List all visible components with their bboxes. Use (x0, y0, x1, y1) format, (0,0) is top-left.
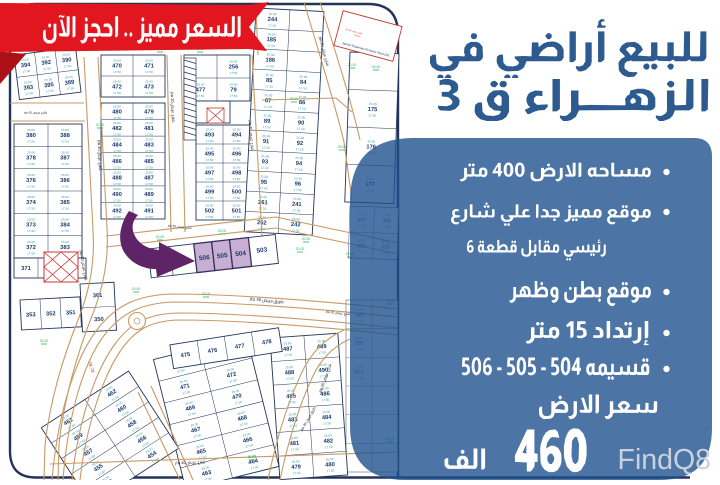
svg-text:20.00: 20.00 (156, 235, 165, 239)
svg-text:20.00: 20.00 (132, 287, 141, 291)
svg-text:85: 85 (266, 78, 274, 84)
svg-text:17.50: 17.50 (145, 70, 153, 74)
svg-text:17.50: 17.50 (265, 84, 273, 88)
svg-text:486: 486 (320, 391, 331, 398)
svg-text:25.00: 25.00 (206, 166, 214, 170)
svg-text:25.00: 25.00 (61, 151, 69, 155)
svg-text:17.50: 17.50 (27, 207, 35, 211)
svg-text:17.50: 17.50 (323, 421, 331, 426)
svg-text:480: 480 (112, 109, 122, 115)
svg-text:25.00: 25.00 (288, 412, 296, 417)
svg-text:17.50: 17.50 (297, 127, 305, 131)
svg-text:17.50: 17.50 (206, 158, 214, 162)
svg-text:25.00: 25.00 (61, 173, 69, 177)
svg-text:25.00: 25.00 (113, 204, 121, 208)
svg-text:25.00: 25.00 (61, 218, 69, 222)
svg-text:504: 504 (235, 250, 247, 258)
svg-text:25.00: 25.00 (145, 137, 153, 141)
svg-text:17.50: 17.50 (298, 106, 306, 110)
svg-text:25.00: 25.00 (293, 197, 301, 201)
svg-text:25.00: 25.00 (145, 104, 153, 108)
svg-text:244: 244 (267, 17, 278, 24)
svg-text:25.00: 25.00 (264, 93, 272, 97)
svg-text:25.00: 25.00 (206, 185, 214, 189)
svg-text:17.50: 17.50 (230, 94, 238, 98)
svg-text:25.00: 25.00 (61, 128, 69, 132)
svg-text:487: 487 (144, 176, 154, 182)
svg-text:482: 482 (112, 126, 122, 132)
svg-text:500: 500 (232, 190, 242, 196)
svg-text:175: 175 (368, 107, 379, 113)
svg-text:17.50: 17.50 (27, 229, 35, 233)
svg-text:25.00: 25.00 (295, 156, 303, 160)
svg-text:17.50: 17.50 (197, 94, 205, 98)
svg-text:17.50: 17.50 (27, 251, 35, 255)
svg-text:25.00: 25.00 (233, 128, 241, 132)
svg-text:17.50: 17.50 (368, 113, 376, 117)
svg-text:20.00: 20.00 (372, 65, 381, 69)
svg-text:17.50: 17.50 (325, 445, 333, 450)
svg-text:388: 388 (60, 133, 70, 139)
svg-text:374: 374 (26, 200, 36, 206)
svg-text:25.00: 25.00 (206, 128, 214, 132)
svg-text:242: 242 (291, 222, 301, 228)
svg-text:25.00: 25.00 (61, 240, 69, 244)
svg-text:25.00: 25.00 (145, 187, 153, 191)
svg-text:25.00: 25.00 (113, 121, 121, 125)
svg-text:17.50: 17.50 (61, 229, 69, 233)
svg-text:472: 472 (112, 85, 122, 91)
svg-text:17.50: 17.50 (145, 182, 153, 186)
svg-text:493: 493 (205, 133, 215, 139)
svg-text:89: 89 (264, 119, 272, 125)
svg-text:20.00: 20.00 (202, 292, 211, 296)
svg-text:94: 94 (296, 161, 304, 167)
svg-text:394: 394 (21, 62, 32, 69)
svg-text:351: 351 (66, 310, 77, 317)
svg-text:92: 92 (297, 141, 304, 147)
svg-text:17.50: 17.50 (61, 140, 69, 144)
svg-text:25.00: 25.00 (113, 154, 121, 158)
svg-text:95: 95 (260, 180, 268, 186)
svg-text:17.50: 17.50 (233, 196, 241, 200)
svg-text:25.00: 25.00 (113, 80, 121, 84)
svg-text:25.00: 25.00 (145, 59, 153, 63)
svg-text:17.50: 17.50 (261, 166, 269, 170)
svg-text:499: 499 (205, 190, 215, 196)
svg-text:371: 371 (21, 266, 31, 272)
svg-text:20.00: 20.00 (248, 455, 257, 459)
svg-text:502: 502 (205, 209, 215, 215)
svg-text:20.00: 20.00 (348, 63, 357, 67)
svg-text:492: 492 (112, 209, 122, 215)
svg-text:17.50: 17.50 (233, 158, 241, 162)
svg-text:25.00: 25.00 (230, 83, 238, 87)
svg-text:17.50: 17.50 (113, 116, 121, 120)
svg-text:25.00: 25.00 (145, 171, 153, 175)
svg-text:17.50: 17.50 (266, 64, 274, 68)
svg-text:79: 79 (230, 88, 237, 94)
svg-text:20.00: 20.00 (40, 339, 49, 343)
svg-text:503: 503 (256, 246, 268, 254)
svg-text:491: 491 (144, 209, 154, 215)
svg-text:17.50: 17.50 (113, 70, 121, 74)
svg-text:25.00: 25.00 (206, 147, 214, 151)
svg-text:17.50: 17.50 (145, 91, 153, 95)
svg-text:241: 241 (292, 202, 303, 209)
svg-text:17.50: 17.50 (206, 177, 214, 181)
svg-text:498: 498 (232, 171, 242, 177)
svg-text:17.50: 17.50 (113, 199, 121, 203)
svg-text:488: 488 (284, 370, 295, 377)
svg-text:484: 484 (322, 415, 333, 422)
svg-text:352: 352 (46, 311, 56, 317)
svg-text:25.00: 25.00 (27, 151, 35, 155)
svg-text:25.00: 25.00 (206, 204, 214, 208)
svg-text:87: 87 (265, 98, 272, 104)
svg-text:20.00: 20.00 (302, 237, 311, 241)
svg-text:17.50: 17.50 (27, 140, 35, 144)
svg-text:96: 96 (294, 181, 302, 187)
svg-text:17.50: 17.50 (294, 188, 302, 192)
svg-text:17.50: 17.50 (292, 471, 300, 476)
svg-text:378: 378 (26, 156, 36, 162)
svg-text:17.50: 17.50 (268, 23, 276, 27)
svg-text:25.00: 25.00 (296, 136, 304, 140)
svg-text:17.50: 17.50 (113, 132, 121, 136)
svg-text:25.00: 25.00 (113, 104, 121, 108)
svg-text:25.00: 25.00 (262, 134, 270, 138)
svg-text:25.00: 25.00 (233, 204, 241, 208)
svg-text:17.50: 17.50 (27, 184, 35, 188)
svg-text:20.00: 20.00 (296, 247, 305, 251)
svg-text:17.50: 17.50 (260, 186, 268, 190)
svg-text:90: 90 (298, 120, 305, 126)
svg-text:470: 470 (112, 64, 122, 70)
svg-text:25.00: 25.00 (27, 218, 35, 222)
svg-text:25.00: 25.00 (61, 195, 69, 199)
svg-text:25.00: 25.00 (367, 139, 375, 143)
svg-text:25.00: 25.00 (297, 115, 305, 119)
svg-text:17.50: 17.50 (286, 376, 294, 381)
svg-text:17.50: 17.50 (206, 139, 214, 143)
svg-text:384: 384 (60, 223, 70, 229)
svg-text:25.00: 25.00 (233, 166, 241, 170)
svg-text:505: 505 (217, 252, 229, 260)
svg-text:17.50: 17.50 (233, 215, 241, 219)
svg-text:25.00: 25.00 (285, 365, 293, 370)
svg-text:91: 91 (263, 139, 271, 145)
svg-text:17.50: 17.50 (61, 207, 69, 211)
svg-text:350: 350 (94, 317, 104, 323)
svg-text:17.50: 17.50 (206, 196, 214, 200)
svg-text:25.00: 25.00 (113, 171, 121, 175)
svg-text:17.50: 17.50 (318, 350, 326, 355)
svg-text:93: 93 (262, 159, 270, 165)
svg-text:383: 383 (60, 245, 70, 251)
svg-text:481: 481 (289, 441, 300, 448)
svg-text:17.50: 17.50 (259, 206, 267, 210)
svg-text:488: 488 (112, 176, 122, 182)
svg-text:17.50: 17.50 (326, 469, 334, 474)
svg-text:17.50: 17.50 (145, 199, 153, 203)
svg-text:17.50: 17.50 (113, 91, 121, 95)
svg-text:25.00: 25.00 (27, 173, 35, 177)
svg-text:25.00: 25.00 (326, 457, 334, 462)
svg-text:372: 372 (26, 245, 36, 251)
svg-text:483: 483 (144, 142, 154, 148)
svg-text:25.00: 25.00 (233, 185, 241, 189)
svg-text:486: 486 (112, 159, 122, 165)
svg-text:261: 261 (258, 200, 269, 207)
svg-text:25.00: 25.00 (263, 114, 271, 118)
svg-text:17.50: 17.50 (263, 125, 271, 129)
svg-text:17.50: 17.50 (206, 215, 214, 219)
svg-text:17.50: 17.50 (321, 398, 329, 403)
svg-text:506: 506 (199, 254, 211, 262)
svg-text:477: 477 (196, 88, 206, 94)
svg-text:25.00: 25.00 (145, 204, 153, 208)
svg-text:17.50: 17.50 (27, 162, 35, 166)
svg-text:17.50: 17.50 (267, 44, 275, 48)
svg-text:17.50: 17.50 (291, 447, 299, 452)
svg-text:25.00: 25.00 (268, 32, 276, 36)
svg-text:17.50: 17.50 (296, 147, 304, 151)
svg-text:497: 497 (205, 171, 215, 177)
svg-text:17.50: 17.50 (292, 208, 300, 212)
svg-text:86: 86 (299, 100, 307, 106)
svg-text:256: 256 (229, 65, 239, 71)
svg-text:25.00: 25.00 (269, 12, 277, 16)
svg-text:25.00: 25.00 (113, 59, 121, 63)
svg-text:17.50: 17.50 (113, 166, 121, 170)
svg-text:473: 473 (144, 85, 154, 91)
svg-text:380: 380 (26, 133, 36, 139)
svg-text:489: 489 (144, 192, 154, 198)
svg-text:25.00: 25.00 (260, 175, 268, 179)
svg-text:17.50: 17.50 (233, 177, 241, 181)
svg-text:471: 471 (144, 64, 154, 70)
svg-text:25.00: 25.00 (261, 154, 269, 158)
svg-text:17.50: 17.50 (262, 145, 270, 149)
svg-text:25.00: 25.00 (27, 240, 35, 244)
svg-text:25.00: 25.00 (233, 147, 241, 151)
svg-text:373: 373 (26, 223, 36, 229)
svg-text:501: 501 (232, 209, 242, 215)
svg-text:25.00: 25.00 (294, 176, 302, 180)
svg-text:17.50: 17.50 (320, 374, 328, 379)
svg-text:25.00: 25.00 (113, 137, 121, 141)
svg-text:84: 84 (300, 80, 308, 86)
svg-text:17.50: 17.50 (284, 353, 292, 358)
svg-text:25.00: 25.00 (369, 102, 377, 106)
svg-text:386: 386 (60, 178, 70, 184)
svg-text:25.00: 25.00 (197, 83, 205, 87)
svg-text:17.50: 17.50 (113, 149, 121, 153)
svg-text:25.00: 25.00 (324, 433, 332, 438)
svg-text:20.00: 20.00 (338, 145, 347, 149)
svg-text:FindQ8: FindQ8 (618, 444, 711, 476)
svg-text:495: 495 (205, 152, 215, 158)
svg-text:25.00: 25.00 (266, 73, 274, 77)
svg-text:25.00: 25.00 (113, 187, 121, 191)
svg-text:490: 490 (112, 192, 122, 198)
svg-text:20.00: 20.00 (96, 123, 105, 127)
svg-text:479: 479 (291, 464, 302, 471)
svg-text:376: 376 (26, 178, 36, 184)
svg-text:25.00: 25.00 (27, 128, 35, 132)
svg-text:484: 484 (112, 142, 122, 148)
svg-text:385: 385 (60, 200, 70, 206)
svg-text:25.00: 25.00 (322, 410, 330, 415)
svg-text:485: 485 (144, 159, 154, 165)
svg-text:483: 483 (288, 417, 299, 424)
svg-text:25.00: 25.00 (145, 80, 153, 84)
svg-text:17.50: 17.50 (61, 184, 69, 188)
svg-text:481: 481 (144, 126, 154, 132)
svg-text:17.50: 17.50 (145, 215, 153, 219)
svg-text:387: 387 (60, 156, 70, 162)
svg-text:17.50: 17.50 (145, 166, 153, 170)
svg-text:25.00: 25.00 (145, 121, 153, 125)
svg-text:185: 185 (266, 37, 277, 44)
svg-text:17.50: 17.50 (113, 215, 121, 219)
svg-text:25.00: 25.00 (145, 154, 153, 158)
svg-text:25.00: 25.00 (299, 75, 307, 79)
svg-text:17.50: 17.50 (230, 71, 238, 75)
svg-text:17.50: 17.50 (145, 132, 153, 136)
svg-text:20.00: 20.00 (290, 97, 299, 101)
svg-text:25.00: 25.00 (267, 53, 275, 57)
svg-text:186: 186 (265, 57, 276, 64)
svg-text:353: 353 (26, 312, 37, 319)
svg-text:17.50: 17.50 (145, 116, 153, 120)
svg-text:25.00: 25.00 (283, 341, 291, 346)
svg-text:17.50: 17.50 (299, 86, 307, 90)
svg-text:17.50: 17.50 (113, 182, 121, 186)
svg-text:25.00: 25.00 (27, 195, 35, 199)
svg-text:494: 494 (232, 133, 242, 139)
svg-text:25.00: 25.00 (230, 60, 238, 64)
svg-text:479: 479 (144, 109, 154, 115)
svg-text:17.50: 17.50 (264, 105, 272, 109)
svg-text:25.00: 25.00 (292, 459, 300, 464)
svg-text:17.50: 17.50 (295, 167, 303, 171)
svg-text:496: 496 (232, 152, 242, 158)
svg-text:20.00: 20.00 (218, 229, 227, 233)
svg-text:17.50: 17.50 (61, 162, 69, 166)
svg-text:17.50: 17.50 (145, 149, 153, 153)
svg-text:17.50: 17.50 (233, 139, 241, 143)
